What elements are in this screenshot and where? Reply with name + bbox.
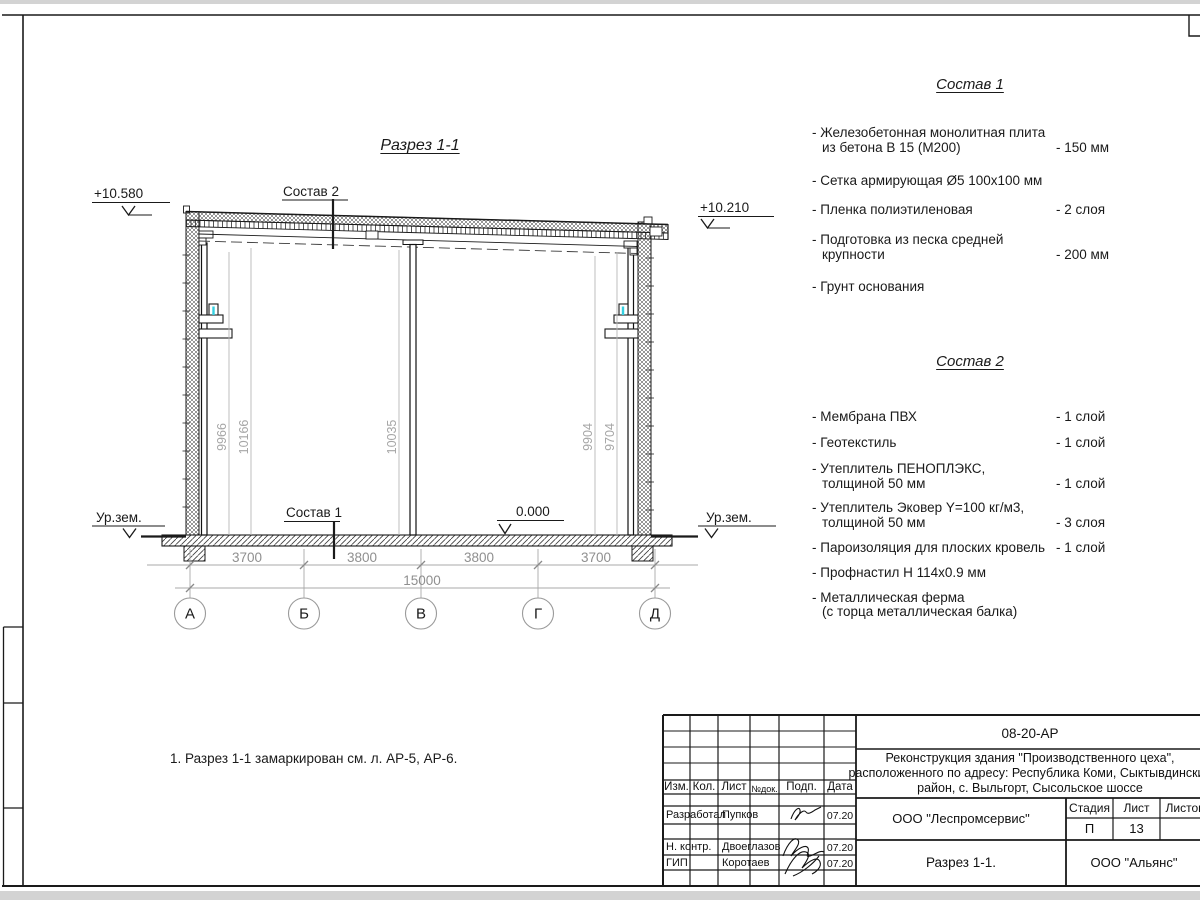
left-margin-boxes	[4, 627, 24, 886]
ground-level-left: Ур.зем.	[96, 511, 142, 526]
titleblock-role: ГИП	[666, 857, 688, 869]
titleblock-col-list: Лист	[722, 781, 747, 793]
titleblock-col-data: Дата	[827, 781, 852, 793]
axis-bubble-label: Б	[299, 606, 309, 623]
titleblock-name: Коротаев	[722, 857, 770, 869]
titleblock-name: Двоеглазов	[722, 841, 780, 853]
sheet-note: 1. Разрез 1-1 замаркирован см. л. АР-5, …	[170, 752, 457, 767]
titleblock-name: Пупков	[722, 809, 758, 821]
floor-slab	[141, 535, 698, 561]
list-item: - Пленка полиэтиленовая	[812, 203, 973, 218]
list-item-qty: - 1 слой	[1056, 541, 1105, 556]
corner-box	[1189, 15, 1200, 36]
list-item-qty: - 1 слой	[1056, 477, 1105, 492]
titleblock-col-ndok: №док.	[751, 784, 777, 794]
list-item: - Пароизоляция для плоских кровель	[812, 541, 1045, 556]
project-line: расположенного по адресу: Республика Ком…	[848, 766, 1200, 780]
document-code: 08-20-АР	[1001, 726, 1058, 741]
vertical-dim: 9704	[603, 423, 617, 451]
org2-name: ООО "Альянс"	[1091, 855, 1178, 870]
list-item: - Геотекстиль	[812, 436, 896, 451]
stage-label: Стадия	[1069, 801, 1110, 815]
sheet-value: 13	[1129, 821, 1143, 836]
crane-brackets	[199, 304, 638, 338]
sheet-label: Лист	[1123, 801, 1149, 815]
doc-title: Разрез 1-1.	[926, 855, 996, 870]
signatures	[783, 807, 824, 876]
roof	[186, 212, 668, 254]
drawing-title: Разрез 1-1	[380, 137, 459, 155]
dim-label: 3700	[232, 551, 262, 566]
elevation-left: +10.580	[94, 187, 143, 202]
sostav2-callout: Состав 2	[283, 185, 339, 200]
titleblock-role: Разработал	[666, 809, 726, 821]
list-item: толщиной 50 мм	[822, 477, 925, 492]
project-line: район, с. Выльгорт, Сысольское шоссе	[917, 781, 1143, 795]
list-item: - Мембрана ПВХ	[812, 410, 917, 425]
vertical-dim: 10035	[385, 420, 399, 455]
drawing-sheet: Разрез 1-1 Состав 2 Состав 1 +10.580 +10…	[0, 0, 1200, 900]
list-item-qty: - 1 слой	[1056, 410, 1105, 425]
axis-bubble-label: А	[185, 606, 195, 623]
list-item: - Грунт основания	[812, 280, 924, 295]
stage-value: П	[1085, 821, 1094, 836]
titleblock-date: 07.20	[827, 842, 853, 854]
list-item: - Утеплитель Эковер Y=100 кг/м3,	[812, 501, 1024, 516]
list-item: - Подготовка из песка средней	[812, 233, 1003, 248]
list-item: из бетона В 15 (М200)	[822, 141, 961, 156]
sostav2-heading: Состав 2	[936, 354, 1004, 371]
vertical-dim: 9966	[215, 423, 229, 451]
axis-bubble-label: Д	[650, 606, 660, 623]
list-item: - Железобетонная монолитная плита	[812, 126, 1045, 141]
window-edge-top	[0, 0, 1200, 4]
titleblock-col-izm: Изм.	[664, 781, 689, 793]
vertical-dim: 10166	[237, 420, 251, 455]
org-name: ООО "Леспромсервис"	[892, 811, 1030, 826]
sheets-label: Листов	[1166, 801, 1200, 815]
ground-level-right: Ур.зем.	[706, 511, 752, 526]
titleblock-date: 07.20	[827, 810, 853, 822]
sostav1-heading: Состав 1	[936, 77, 1004, 94]
sostav1-callout: Состав 1	[286, 506, 342, 521]
left-wall	[183, 206, 214, 535]
list-item: крупности	[822, 248, 885, 263]
cyan-accents	[214, 307, 624, 316]
dim-label: 3700	[581, 551, 611, 566]
project-line: Реконструкция здания "Производственного …	[886, 751, 1175, 765]
right-wall	[624, 217, 654, 535]
titleblock-col-kol: Кол.	[693, 781, 716, 793]
list-item: толщиной 50 мм	[822, 516, 925, 531]
window-edge-bottom	[0, 891, 1200, 900]
list-item-qty: - 1 слой	[1056, 436, 1105, 451]
vertical-dim: 9904	[581, 423, 595, 451]
dim-label: 3800	[464, 551, 494, 566]
list-item-qty: - 2 слоя	[1056, 203, 1105, 218]
list-item: - Утеплитель ПЕНОПЛЭКС,	[812, 462, 985, 477]
total-dim-label: 15000	[403, 574, 441, 589]
list-item: (с торца металлическая балка)	[822, 605, 1017, 620]
axis-bubble-label: В	[416, 606, 426, 623]
elevation-right: +10.210	[700, 201, 749, 216]
elevation-zero: 0.000	[516, 505, 550, 520]
dim-label: 3800	[347, 551, 377, 566]
list-item-qty: - 200 мм	[1056, 248, 1109, 263]
list-item: - Профнастил Н 114х0.9 мм	[812, 566, 986, 581]
list-item-qty: - 150 мм	[1056, 141, 1109, 156]
axis-bubble-label: Г	[534, 606, 542, 623]
list-item-qty: - 3 слоя	[1056, 516, 1105, 531]
titleblock-date: 07.20	[827, 858, 853, 870]
titleblock-role: Н. контр.	[666, 841, 711, 853]
titleblock-col-podp: Подп.	[786, 781, 817, 793]
list-item: - Сетка армирующая Ø5 100x100 мм	[812, 174, 1042, 189]
middle-column	[403, 240, 423, 535]
